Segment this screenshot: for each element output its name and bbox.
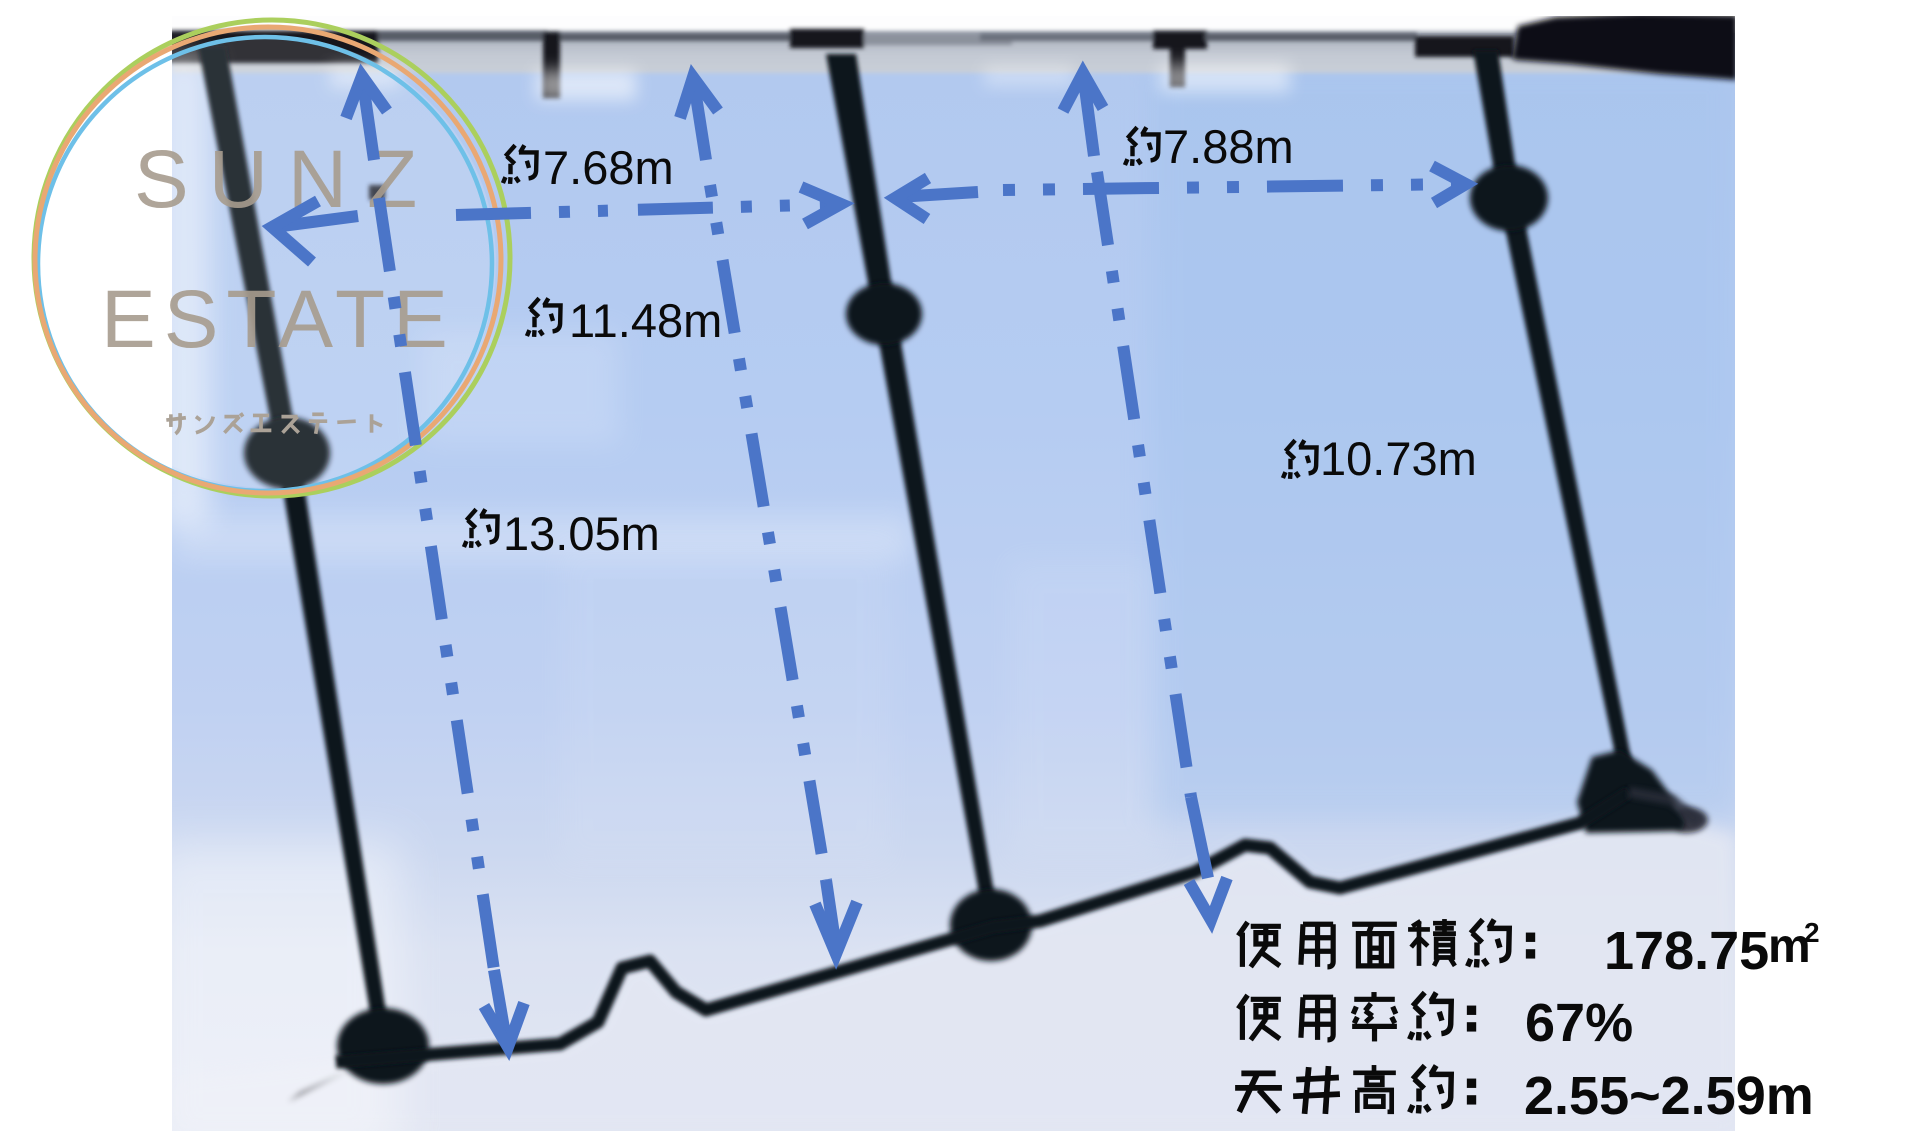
svg-text:67%: 67% [1525,993,1633,1053]
svg-text:ESTATE: ESTATE [101,274,456,365]
svg-text:10.73m: 10.73m [1320,432,1477,485]
svg-text:178.75: 178.75 [1604,921,1769,981]
svg-text:11.48m: 11.48m [569,294,722,347]
svg-text:7.88m: 7.88m [1163,120,1294,173]
svg-text:SUNZ: SUNZ [134,134,437,225]
svg-text:7.68m: 7.68m [543,141,674,194]
svg-text:13.05m: 13.05m [503,507,660,560]
svg-text:2.55~2.59m: 2.55~2.59m [1524,1066,1814,1126]
svg-text:2: 2 [1804,917,1820,948]
